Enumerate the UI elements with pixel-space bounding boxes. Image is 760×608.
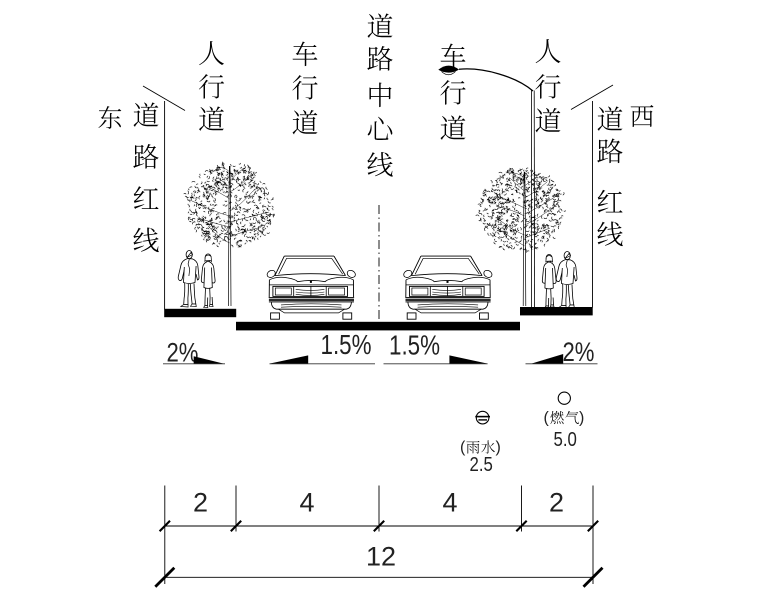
svg-text:): ): [496, 439, 501, 456]
svg-text:2: 2: [193, 488, 208, 518]
svg-text:2.5: 2.5: [470, 453, 493, 476]
svg-text:4: 4: [443, 488, 458, 518]
svg-text:12: 12: [366, 542, 396, 572]
svg-text:1.5%: 1.5%: [389, 330, 440, 361]
svg-text:(: (: [460, 439, 466, 456]
svg-text:4: 4: [300, 488, 315, 518]
svg-text:2%: 2%: [563, 338, 595, 368]
svg-text:): ): [579, 410, 584, 427]
svg-text:5.0: 5.0: [554, 428, 577, 451]
svg-text:(: (: [544, 410, 550, 427]
svg-text:1.5%: 1.5%: [321, 330, 372, 361]
svg-text:2: 2: [549, 488, 564, 518]
